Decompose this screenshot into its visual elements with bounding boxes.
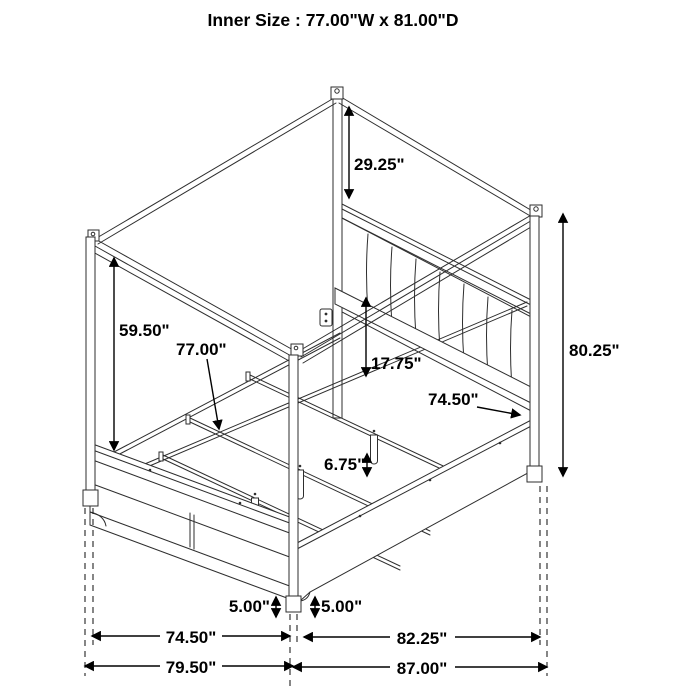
dim-label-canopy-to-headboard: 29.25" (354, 155, 405, 174)
bed-dimension-diagram: 29.25" 59.50" 77.00" 17.75" 74.50" 80.25… (0, 0, 700, 700)
dim-label-overall-width: 79.50" (166, 658, 217, 677)
dim-label-slat-leg-height: 6.75" (324, 455, 365, 474)
dim-label-overall-depth: 87.00" (397, 659, 448, 678)
diagram-canvas: 29.25" 59.50" 77.00" 17.75" 74.50" 80.25… (0, 0, 700, 700)
footboard (90, 443, 295, 601)
right-side-rail (297, 417, 537, 601)
dim-label-siderail-outer-span: 82.25" (397, 629, 448, 648)
dim-label-headboard-to-slat: 17.75" (371, 354, 422, 373)
dim-label-footboard-clearance: 5.00" (229, 597, 270, 616)
dim-label-under-canopy-height: 59.50" (119, 321, 170, 340)
dim-label-siderail-clearance: 5.00" (321, 597, 362, 616)
dim-label-side-rail-length: 74.50" (428, 390, 479, 409)
dim-label-inner-width: 77.00" (176, 340, 227, 359)
dim-label-footboard-outer-width: 74.50" (166, 628, 217, 647)
page-title: Inner Size : 77.00"W x 81.00"D (207, 10, 458, 30)
dim-label-overall-height: 80.25" (569, 341, 620, 360)
mounting-bracket (320, 309, 332, 326)
rear-post (333, 99, 342, 418)
